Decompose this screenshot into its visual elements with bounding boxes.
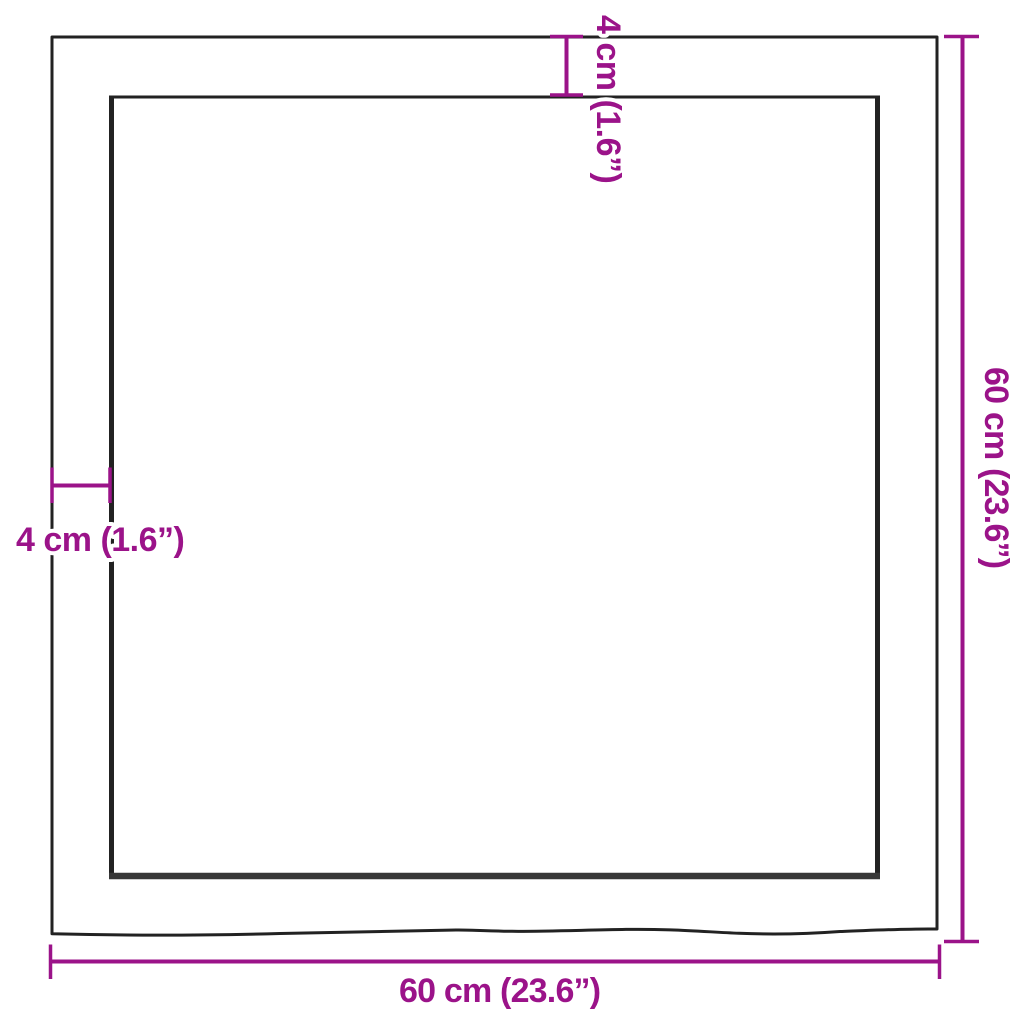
svg-text:60 cm (23.6”): 60 cm (23.6”) [977,367,1015,568]
svg-text:60 cm (23.6”): 60 cm (23.6”) [399,972,600,1010]
svg-text:4 cm (1.6”): 4 cm (1.6”) [589,15,627,183]
svg-text:4 cm (1.6”): 4 cm (1.6”) [16,521,184,559]
